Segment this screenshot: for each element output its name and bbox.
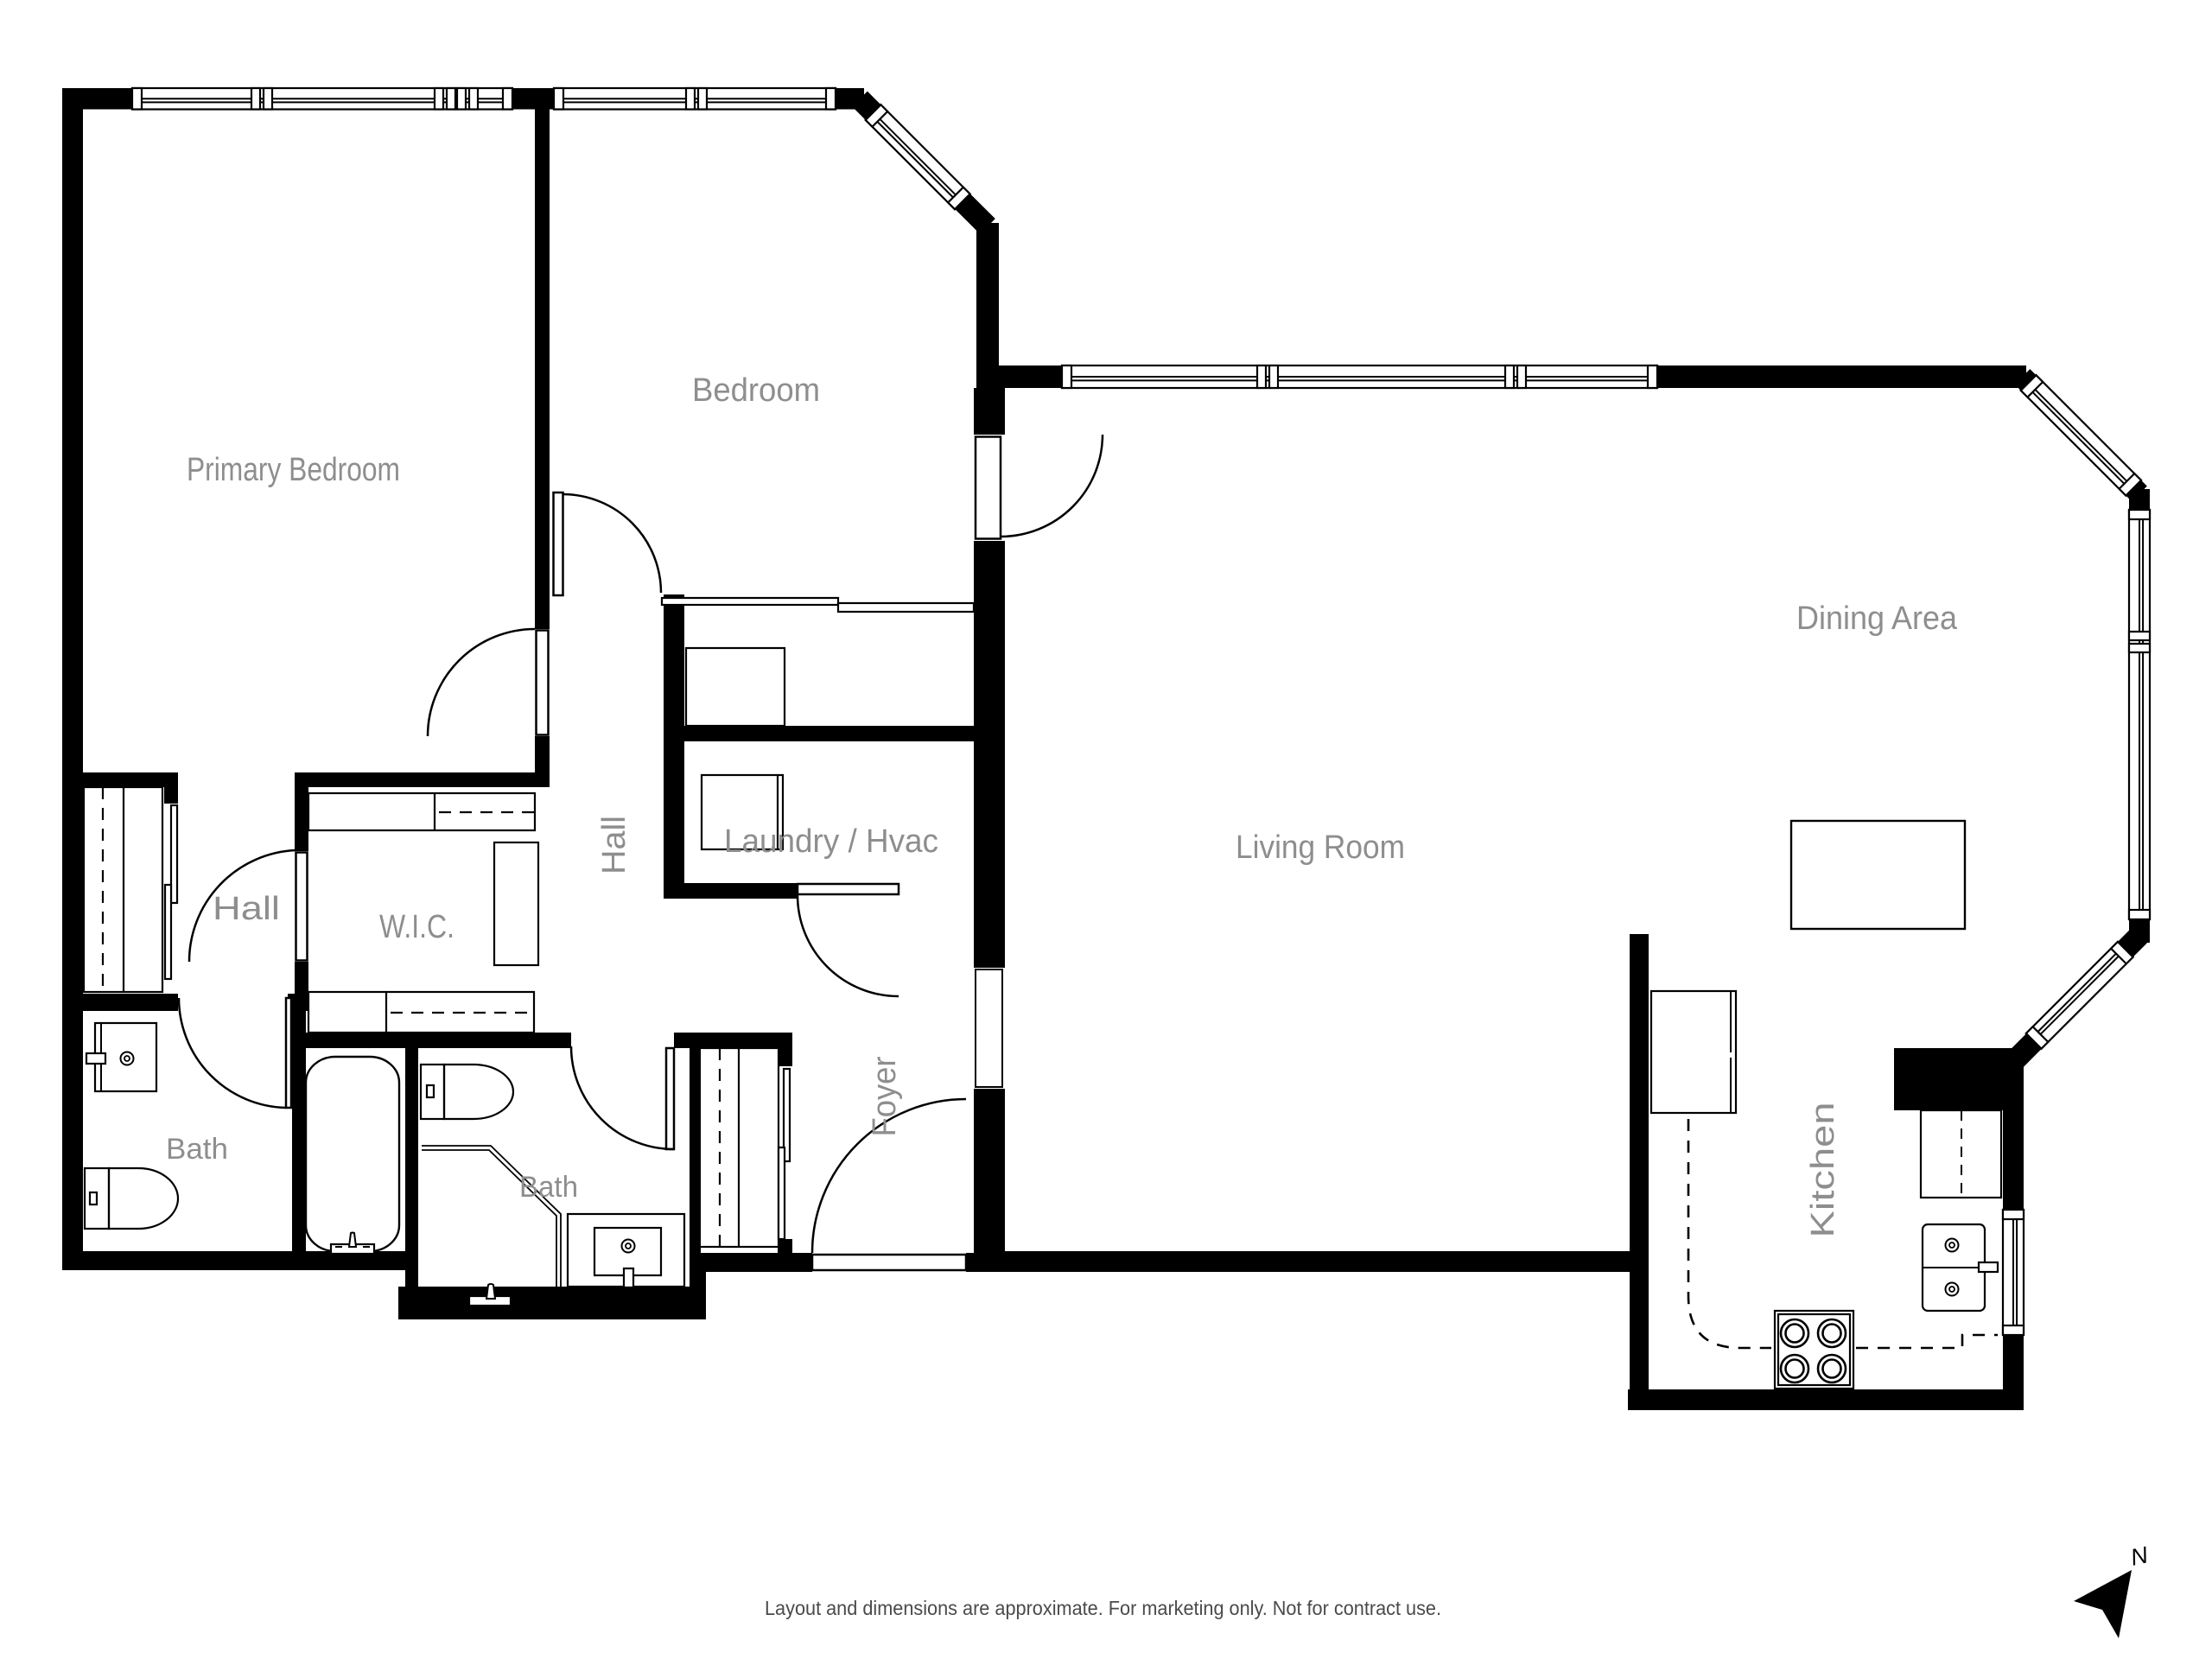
- svg-text:Primary Bedroom: Primary Bedroom: [187, 452, 400, 488]
- svg-text:W.I.C.: W.I.C.: [379, 909, 454, 945]
- svg-text:Foyer: Foyer: [867, 1056, 903, 1136]
- svg-text:Hall: Hall: [213, 891, 280, 927]
- svg-text:Bath: Bath: [166, 1133, 228, 1166]
- svg-text:Bath: Bath: [519, 1171, 578, 1204]
- svg-text:Kitchen: Kitchen: [1805, 1103, 1841, 1238]
- svg-text:Living Room: Living Room: [1236, 829, 1405, 866]
- svg-text:Layout and dimensions are appr: Layout and dimensions are approximate. F…: [765, 1597, 1441, 1619]
- svg-text:Dining Area: Dining Area: [1796, 601, 1958, 637]
- svg-text:Bedroom: Bedroom: [692, 372, 820, 409]
- svg-text:Hall: Hall: [596, 816, 632, 874]
- svg-text:Laundry / Hvac: Laundry / Hvac: [724, 823, 938, 860]
